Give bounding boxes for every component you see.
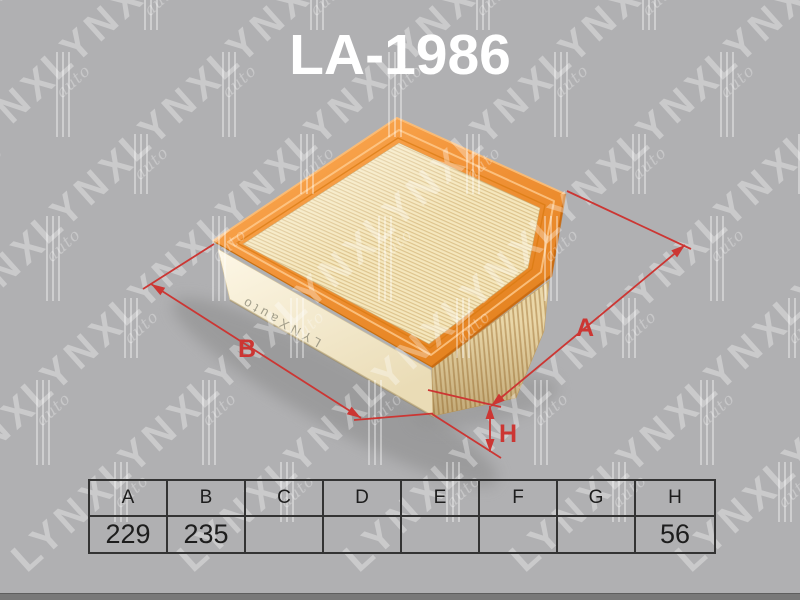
spec-header-d: D bbox=[324, 481, 402, 517]
spec-value-f bbox=[480, 517, 558, 552]
spec-header-c: C bbox=[246, 481, 324, 517]
spec-value-e bbox=[402, 517, 480, 552]
spec-header-f: F bbox=[480, 481, 558, 517]
spec-header-a: A bbox=[90, 481, 168, 517]
dimension-h-extension-top bbox=[428, 390, 501, 407]
spec-value-a: 229 bbox=[90, 517, 168, 552]
spec-table: A B C D E F G H 229 235 56 bbox=[88, 479, 716, 554]
dimension-a-extension bbox=[567, 191, 691, 249]
catalog-card: LYNXauto LYNXautoLYNXautoLYNXautoLYNXaut… bbox=[0, 0, 800, 600]
dimension-b-extension bbox=[143, 244, 214, 289]
dimension-label-a: A bbox=[576, 314, 594, 342]
spec-value-c bbox=[246, 517, 324, 552]
spec-value-g bbox=[558, 517, 636, 552]
spec-value-b: 235 bbox=[168, 517, 246, 552]
spec-value-h: 56 bbox=[636, 517, 714, 552]
dimension-label-b: B bbox=[238, 335, 256, 363]
spec-value-d bbox=[324, 517, 402, 552]
dimension-label-h: H bbox=[499, 420, 517, 448]
spec-header-e: E bbox=[402, 481, 480, 517]
part-number-title: LA-1986 bbox=[0, 27, 800, 84]
spec-header-g: G bbox=[558, 481, 636, 517]
spec-header-h: H bbox=[636, 481, 714, 517]
dimension-b-extension2 bbox=[354, 414, 433, 421]
spec-header-b: B bbox=[168, 481, 246, 517]
dimension-arrowheads bbox=[151, 245, 685, 452]
